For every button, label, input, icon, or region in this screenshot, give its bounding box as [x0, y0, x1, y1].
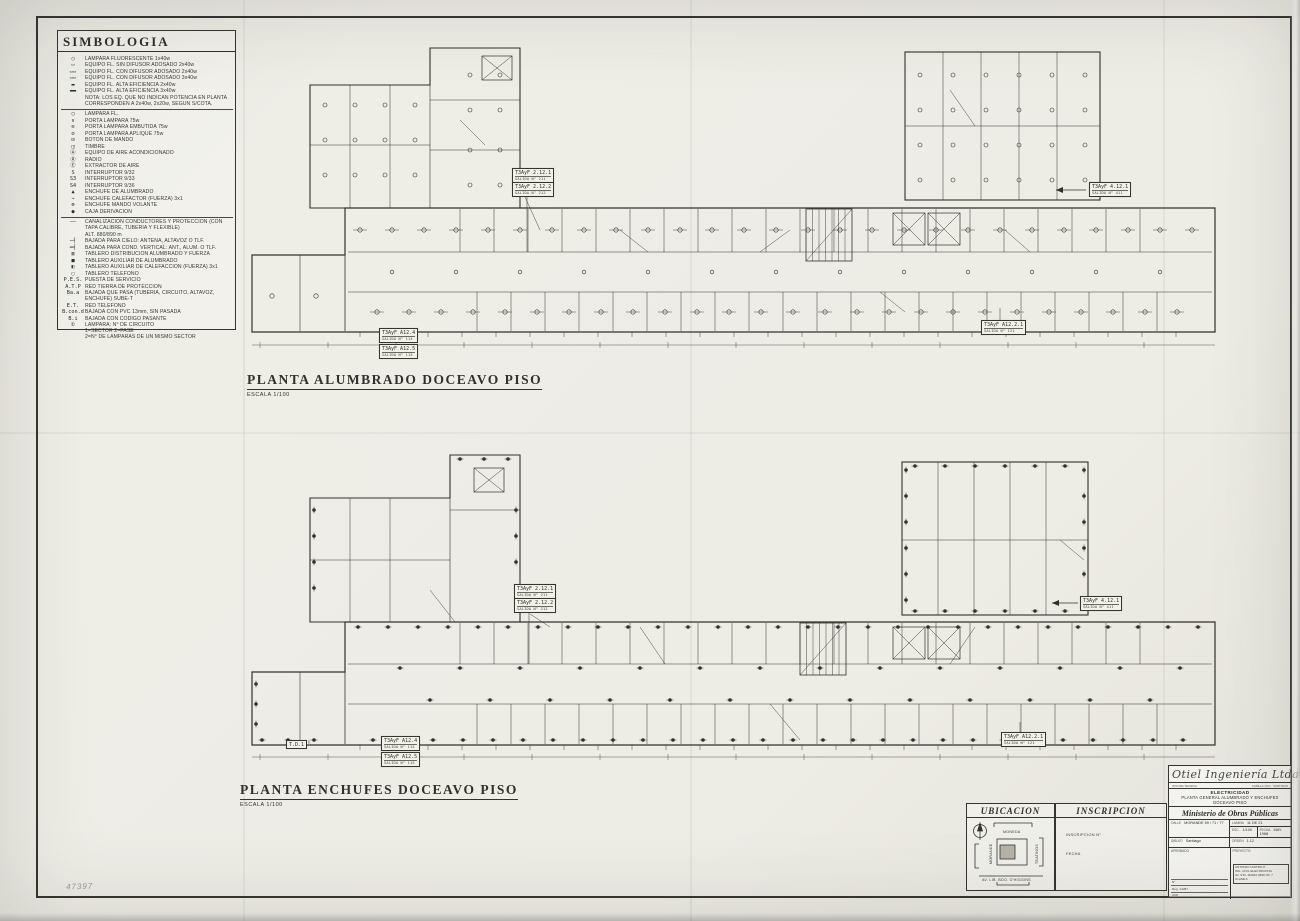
aprobado-line: ACP [1171, 892, 1228, 899]
legend-label: ENCHUFE CALEFACTOR (FUERZA) 3x1 [85, 196, 233, 202]
circuit-tag-outlet: SALIDA N° 115 [382, 352, 415, 358]
legend-row: ▭▭EQUIPO FL. CON DIFUSOR ADOSADO 2x40w [61, 69, 233, 75]
circuit-tag: T3AyF A12.4SALIDA N° 114 [381, 736, 420, 751]
legend-row: ∨PORTA LAMPARA 75w [61, 118, 233, 124]
scan-edge [1290, 0, 1300, 921]
legend-label: PUESTA DE SERVICIO [85, 277, 233, 283]
circuit-tag: T3AyF 2.12.1SALIDA N° 211 [514, 584, 556, 599]
legend-row: ▭EQUIPO FL. SIN DIFUSOR ADOSADO 2x40w [61, 62, 233, 68]
legend-row: ⒺEXTRACTOR DE AIRE [61, 163, 233, 169]
proyecto-cell: PROYECTO: ANTONIO CASTRO P.ING. CIVIL EL… [1231, 848, 1292, 899]
legend-row: ◧TABLERO AUXILIAR DE CALEFACCION (FUERZA… [61, 264, 233, 270]
legend-label: EQUIPO FL. CON DIFUSOR ADOSADO 3x40w [85, 75, 233, 81]
legend-symbol-icon: ▭▭ [61, 75, 85, 81]
legend-row: ▥TABLERO DISTRIBUCION ALUMBRADO Y FUERZA [61, 251, 233, 257]
street-label-top: MONEDA [1003, 830, 1021, 834]
proyecto-label: PROYECTO: [1233, 849, 1252, 853]
legend-label: EQUIPO FL. ALTA EFICIENCIA 2x40w [85, 82, 233, 88]
proyecto-stamp: ANTONIO CASTRO P.ING. CIVIL ELECTRICISTA… [1233, 864, 1290, 884]
legend-label: PORTA LAMPARA APLIQUE 75w [85, 131, 233, 137]
legend-rows: ◯LAMPARA FLUORESCENTE 1x40w▭EQUIPO FL. S… [58, 52, 235, 342]
legend-symbol-icon: S [61, 170, 85, 176]
circuit-tag-code: T3AyF A12.4 [382, 330, 415, 336]
legend-row: ■TABLERO AUXILIAR DE ALUMBRADO [61, 258, 233, 264]
legend-label: PORTA LAMPARA 75w [85, 118, 233, 124]
circuit-tag: T3AyF 4.12.1SALIDA N° 411 [1089, 182, 1131, 197]
legend-symbol-icon: ▢ [61, 271, 85, 277]
plan-scale-text: ESCALA 1/100 [240, 802, 518, 808]
legend-label: ALT. 880/890 m [85, 232, 233, 238]
legend-label: EQUIPO DE AIRE ACONDICIONADO [85, 150, 233, 156]
inscripcion-number-field: INSCRIPCION N° [1066, 832, 1166, 837]
circuit-tag-outlet: SALIDA N° 211 [517, 592, 553, 598]
aprobado-label: APROBADO [1171, 849, 1189, 853]
pencil-annotation: 47397 [66, 882, 94, 892]
legend-label: TABLERO DISTRIBUCION ALUMBRADO Y FUERZA [85, 251, 233, 257]
company-subline: OFICINA TECNICA CASILLA 13-D · SANTIAGO [1169, 783, 1291, 789]
legend-row: NOTA: LOS EQ. QUE NO INDICAN POTENCIA EN… [61, 95, 233, 107]
orden-cell: ORDEN 1.12 [1230, 838, 1291, 847]
circuit-tag-code: T3AyF A12.5 [384, 754, 417, 760]
legend-label: NOTA: LOS EQ. QUE NO INDICAN POTENCIA EN… [85, 95, 233, 107]
legend-row: ▬▬EQUIPO FL. ALTA EFICIENCIA 3x40w [61, 88, 233, 94]
legend-symbol-icon: ◫ [61, 144, 85, 150]
legend-row: B.con.dBAJADA CON PVC 13mm, SIN PASADA [61, 309, 233, 315]
legend-symbol-icon: S4 [61, 183, 85, 189]
plan-scale-text: ESCALA 1/100 [247, 392, 542, 398]
titleblock-row-3: APROBADO N°Reg. 14287ACP PROYECTO: ANTON… [1169, 848, 1291, 899]
circuit-tag: T3AyF A12.5SALIDA N° 115 [379, 344, 418, 359]
legend-row: ●CAJA DERIVACION [61, 209, 233, 215]
circuit-tag-code: T3AyF A12.2.1 [984, 322, 1023, 328]
legend-row: ═╡BAJADA PARA COND. VERTICAL: ANT., ALUM… [61, 245, 233, 251]
titleblock-row-1: CALLE MORANDE 59 / 71 / 77 LAMINA 11 DE … [1169, 820, 1291, 838]
lamina-cell: LAMINA 11 DE 21 [1230, 820, 1291, 827]
street-label-left: MORANDE [989, 844, 993, 864]
legend-symbol-icon: ▲ [61, 189, 85, 195]
street-label-right: TEATINOS [1035, 844, 1039, 864]
plan-title-alumbrado: PLANTA ALUMBRADO DOCEAVO PISO ESCALA 1/1… [247, 372, 542, 398]
legend-title: SIMBOLOGIA [58, 31, 235, 52]
aprobado-signature-lines: N°Reg. 14287ACP [1171, 879, 1228, 899]
circuit-tag-outlet: SALIDA N° 211 [515, 176, 551, 182]
circuit-tag-outlet: SALIDA N° 212 [515, 190, 551, 196]
esc-cell: ESC. 1/100 [1230, 827, 1258, 837]
legend-symbol-icon: ● [61, 209, 85, 215]
legend-row: ◯LAMPARA FL. [61, 111, 233, 117]
legend-symbol-icon: ⊗ [61, 202, 85, 208]
legend-symbol-icon: ◧ [61, 264, 85, 270]
legend-symbol-icon: ◯ [61, 56, 85, 62]
legend-symbol-icon: ▬ [61, 82, 85, 88]
circuit-tag-code: T.D.1 [289, 742, 304, 748]
legend-label: BOTON DE MANDO [85, 137, 233, 143]
legend-symbol-icon: ─┤ [61, 238, 85, 244]
symbology-legend: SIMBOLOGIA ◯LAMPARA FLUORESCENTE 1x40w▭E… [57, 30, 236, 330]
legend-symbol-icon: Ⓐ [61, 150, 85, 156]
legend-label: RED TELEFONO [85, 303, 233, 309]
legend-label: EQUIPO FL. CON DIFUSOR ADOSADO 2x40w [85, 69, 233, 75]
esc-fecha-row: ESC. 1/100 FECHA MAY. 1968 [1230, 827, 1291, 837]
esc-value: 1/100 [1243, 828, 1253, 832]
legend-symbol-icon: ∨ [61, 118, 85, 124]
ubicacion-panel: UBICACION MONEDA MORANDE TEATINOS [966, 803, 1055, 891]
street-label-bottom: AV. LIB. BDO. O'HIGGINS [982, 878, 1031, 882]
legend-row: ⊗ENCHUFE MANDO VOLANTE [61, 202, 233, 208]
circuit-tag: T3AyF 4.12.1SALIDA N° 411 [1080, 596, 1122, 611]
legend-row: A.T.PRED TIERRA DE PROTECCION [61, 284, 233, 290]
circuit-tag: T3AyF 2.12.2SALIDA N° 212 [512, 182, 554, 197]
legend-label: BAJADA PARA CIELO: ANTENA, ALTAVOZ O TLF… [85, 238, 233, 244]
legend-row: ⊘PORTA LAMPARA APLIQUE 75w [61, 131, 233, 137]
legend-label: CAJA DERIVACION [85, 209, 233, 215]
legend-label: INTERRUPTOR 9/36 [85, 183, 233, 189]
orden-label: ORDEN [1232, 839, 1244, 843]
circuit-tag-outlet: SALIDA N° 114 [382, 336, 415, 342]
legend-row: ─┤BAJADA PARA CIELO: ANTENA, ALTAVOZ O T… [61, 238, 233, 244]
legend-symbol-icon: B.i [61, 316, 85, 322]
legend-label: LAMPARA: N° DE CIRCUITO 1=SECTOR 2=FASE … [85, 322, 233, 340]
legend-symbol-icon: ① [61, 322, 85, 328]
legend-row: ⌁ENCHUFE CALEFACTOR (FUERZA) 3x1 [61, 196, 233, 202]
legend-row: ▢TABLERO TELEFONO [61, 271, 233, 277]
legend-symbol-icon: A.T.P [61, 284, 85, 290]
legend-label: TIMBRE [85, 144, 233, 150]
circuit-tag-code: T3AyF 4.12.1 [1083, 598, 1119, 604]
legend-label: LAMPARA FL. [85, 111, 233, 117]
aprobado-cell: APROBADO N°Reg. 14287ACP [1169, 848, 1231, 899]
plan-title-enchufes: PLANTA ENCHUFES DOCEAVO PISO ESCALA 1/10… [240, 782, 518, 808]
circuit-tag: T3AyF A12.4SALIDA N° 114 [379, 328, 418, 343]
legend-symbol-icon: ▥ [61, 251, 85, 257]
legend-symbol-icon: ⊘ [61, 131, 85, 137]
legend-row: ▬EQUIPO FL. ALTA EFICIENCIA 2x40w [61, 82, 233, 88]
legend-label: BAJADA QUE PASA (TUBERIA, CIRCUITO, ALTA… [85, 290, 233, 302]
circuit-tag-outlet: SALIDA N° 411 [1092, 190, 1128, 196]
esc-label: ESC. [1232, 828, 1239, 832]
company-address: CASILLA 13-D · SANTIAGO [1252, 784, 1288, 788]
circuit-tag-outlet: SALIDA N° 121 [984, 328, 1023, 334]
title-block: Otiel Ingeniería Ltda. OFICINA TECNICA C… [1168, 765, 1292, 898]
calle-value: MORANDE 59 / 71 / 77 [1184, 821, 1223, 825]
legend-row: ⒶEQUIPO DE AIRE ACONDICIONADO [61, 150, 233, 156]
legend-symbol-icon: P.E.S. [61, 277, 85, 283]
legend-symbol-icon: B.con.d [61, 309, 85, 315]
circuit-tag-code: T3AyF A12.2.1 [1004, 734, 1043, 740]
legend-label: RADIO [85, 157, 233, 163]
lamina-esc-cell: LAMINA 11 DE 21 ESC. 1/100 FECHA MAY. 19… [1230, 820, 1291, 837]
legend-symbol-icon: ◯ [61, 111, 85, 117]
legend-row: ▭▭EQUIPO FL. CON DIFUSOR ADOSADO 3x40w [61, 75, 233, 81]
circuit-tag-code: T3AyF A12.4 [384, 738, 417, 744]
legend-row: ▲ENCHUFE DE ALUMBRADO [61, 189, 233, 195]
legend-label: BAJADA CON PVC 13mm, SIN PASADA [85, 309, 233, 315]
circuit-tag: T3AyF A12.2.1SALIDA N° 121 [981, 320, 1026, 335]
legend-label: CANALIZACION CONDUCTORES Y PROTECCION (C… [85, 219, 233, 231]
circuit-tag-code: T3AyF 2.12.2 [517, 600, 553, 606]
circuit-tag: T3AyF 2.12.2SALIDA N° 212 [514, 598, 556, 613]
legend-symbol-icon: ■ [61, 258, 85, 264]
legend-row: ——CANALIZACION CONDUCTORES Y PROTECCION … [61, 219, 233, 231]
legend-label: EQUIPO FL. ALTA EFICIENCIA 3x40w [85, 88, 233, 94]
legend-symbol-icon: Ⓔ [61, 163, 85, 169]
legend-label: ENCHUFE DE ALUMBRADO [85, 189, 233, 195]
legend-row: ALT. 880/890 m [61, 232, 233, 238]
legend-label: TABLERO AUXILIAR DE CALEFACCION (FUERZA)… [85, 264, 233, 270]
legend-label: ENCHUFE MANDO VOLANTE [85, 202, 233, 208]
legend-row: ◯LAMPARA FLUORESCENTE 1x40w [61, 56, 233, 62]
legend-row: B.iBAJADA CON CODIGO PASANTE [61, 316, 233, 322]
legend-section: ◯LAMPARA FLUORESCENTE 1x40w▭EQUIPO FL. S… [61, 54, 233, 110]
ubicacion-title: UBICACION [967, 804, 1054, 818]
plan-title-text: PLANTA ALUMBRADO DOCEAVO PISO [247, 372, 542, 390]
legend-label: INTERRUPTOR 9/33 [85, 176, 233, 182]
legend-symbol-icon: ⊡ [61, 137, 85, 143]
lamina-label: LAMINA [1232, 821, 1244, 825]
legend-row: Ba.aBAJADA QUE PASA (TUBERIA, CIRCUITO, … [61, 290, 233, 302]
legend-row: ⓇRADIO [61, 157, 233, 163]
calle-cell: CALLE MORANDE 59 / 71 / 77 [1169, 820, 1230, 837]
circuit-tag-outlet: SALIDA N° 121 [1004, 740, 1043, 746]
legend-symbol-icon: ▭▭ [61, 69, 85, 75]
legend-label: BAJADA CON CODIGO PASANTE [85, 316, 233, 322]
legend-symbol-icon: ⊖ [61, 124, 85, 130]
dibujo-label: DIBUJO [1171, 839, 1183, 843]
legend-label: EQUIPO FL. SIN DIFUSOR ADOSADO 2x40w [85, 62, 233, 68]
circuit-tag-outlet: SALIDA N° 212 [517, 606, 553, 612]
company-office: OFICINA TECNICA [1172, 784, 1197, 788]
location-map: MONEDA MORANDE TEATINOS AV. LIB. BDO. O'… [967, 818, 1054, 887]
inscripcion-panel: INSCRIPCION INSCRIPCION N° FECHA [1055, 803, 1167, 891]
legend-label: TABLERO AUXILIAR DE ALUMBRADO [85, 258, 233, 264]
legend-symbol-icon: ═╡ [61, 245, 85, 251]
lamina-value: 11 DE 21 [1247, 821, 1263, 825]
legend-section: ——CANALIZACION CONDUCTORES Y PROTECCION … [61, 218, 233, 343]
circuit-tag-code: T3AyF 2.12.1 [515, 170, 551, 176]
legend-label: BAJADA PARA COND. VERTICAL: ANT., ALUM. … [85, 245, 233, 251]
inscripcion-title: INSCRIPCION [1056, 804, 1166, 818]
circuit-tag: T3AyF A12.2.1SALIDA N° 121 [1001, 732, 1046, 747]
proyecto-line: CLASE A [1235, 878, 1287, 882]
drawing-title-line2: DOCEAVO PISO [1169, 800, 1291, 805]
calle-label: CALLE [1171, 821, 1181, 825]
circuit-tag-code: T3AyF 2.12.2 [515, 184, 551, 190]
legend-row: SINTERRUPTOR 9/32 [61, 170, 233, 176]
legend-row: ⊖PORTA LAMPARA EMBUTIDA 75w [61, 124, 233, 130]
circuit-tag: T3AyF A12.5SALIDA N° 115 [381, 752, 420, 767]
legend-row: S4INTERRUPTOR 9/36 [61, 183, 233, 189]
client-name: Ministerio de Obras Públicas [1169, 806, 1291, 820]
legend-row: P.E.S.PUESTA DE SERVICIO [61, 277, 233, 283]
dibujo-value: Santiago [1186, 839, 1201, 843]
orden-value: 1.12 [1247, 839, 1254, 843]
legend-label: INTERRUPTOR 9/32 [85, 170, 233, 176]
legend-label: TABLERO TELEFONO [85, 271, 233, 277]
legend-symbol-icon: ▬▬ [61, 88, 85, 94]
legend-symbol-icon: Ba.a [61, 290, 85, 296]
legend-symbol-icon: ⌁ [61, 196, 85, 202]
legend-symbol-icon: ▭ [61, 62, 85, 68]
dibujo-cell: DIBUJO Santiago [1169, 838, 1230, 847]
circuit-tag-outlet: SALIDA N° 411 [1083, 604, 1119, 610]
circuit-tag: T.D.1 [286, 740, 307, 749]
legend-row: ⊡BOTON DE MANDO [61, 137, 233, 143]
legend-row: E.T.RED TELEFONO [61, 303, 233, 309]
legend-label: PORTA LAMPARA EMBUTIDA 75w [85, 124, 233, 130]
legend-section: ◯LAMPARA FL.∨PORTA LAMPARA 75w⊖PORTA LAM… [61, 110, 233, 218]
scan-edge [0, 913, 1300, 921]
legend-symbol-icon: Ⓡ [61, 157, 85, 163]
company-name: Otiel Ingeniería Ltda. [1169, 766, 1291, 783]
legend-label: EXTRACTOR DE AIRE [85, 163, 233, 169]
legend-symbol-icon: —— [61, 219, 85, 225]
legend-row: ◫TIMBRE [61, 144, 233, 150]
legend-label: LAMPARA FLUORESCENTE 1x40w [85, 56, 233, 62]
plan-title-text: PLANTA ENCHUFES DOCEAVO PISO [240, 782, 518, 800]
drawing-sheet: SIMBOLOGIA ◯LAMPARA FLUORESCENTE 1x40w▭E… [0, 0, 1300, 921]
circuit-tag-code: T3AyF 2.12.1 [517, 586, 553, 592]
circuit-tag-code: T3AyF 4.12.1 [1092, 184, 1128, 190]
legend-label: RED TIERRA DE PROTECCION [85, 284, 233, 290]
inscripcion-date-field: FECHA [1066, 851, 1166, 856]
circuit-tag: T3AyF 2.12.1SALIDA N° 211 [512, 168, 554, 183]
circuit-tag-outlet: SALIDA N° 114 [384, 744, 417, 750]
legend-symbol-icon: E.T. [61, 303, 85, 309]
legend-symbol-icon: S3 [61, 176, 85, 182]
circuit-tag-outlet: SALIDA N° 115 [384, 760, 417, 766]
legend-row: ①LAMPARA: N° DE CIRCUITO 1=SECTOR 2=FASE… [61, 322, 233, 340]
legend-row: S3INTERRUPTOR 9/33 [61, 176, 233, 182]
titleblock-row-2: DIBUJO Santiago ORDEN 1.12 [1169, 838, 1291, 848]
fecha-cell: FECHA MAY. 1968 [1258, 827, 1291, 837]
circuit-tag-code: T3AyF A12.5 [382, 346, 415, 352]
